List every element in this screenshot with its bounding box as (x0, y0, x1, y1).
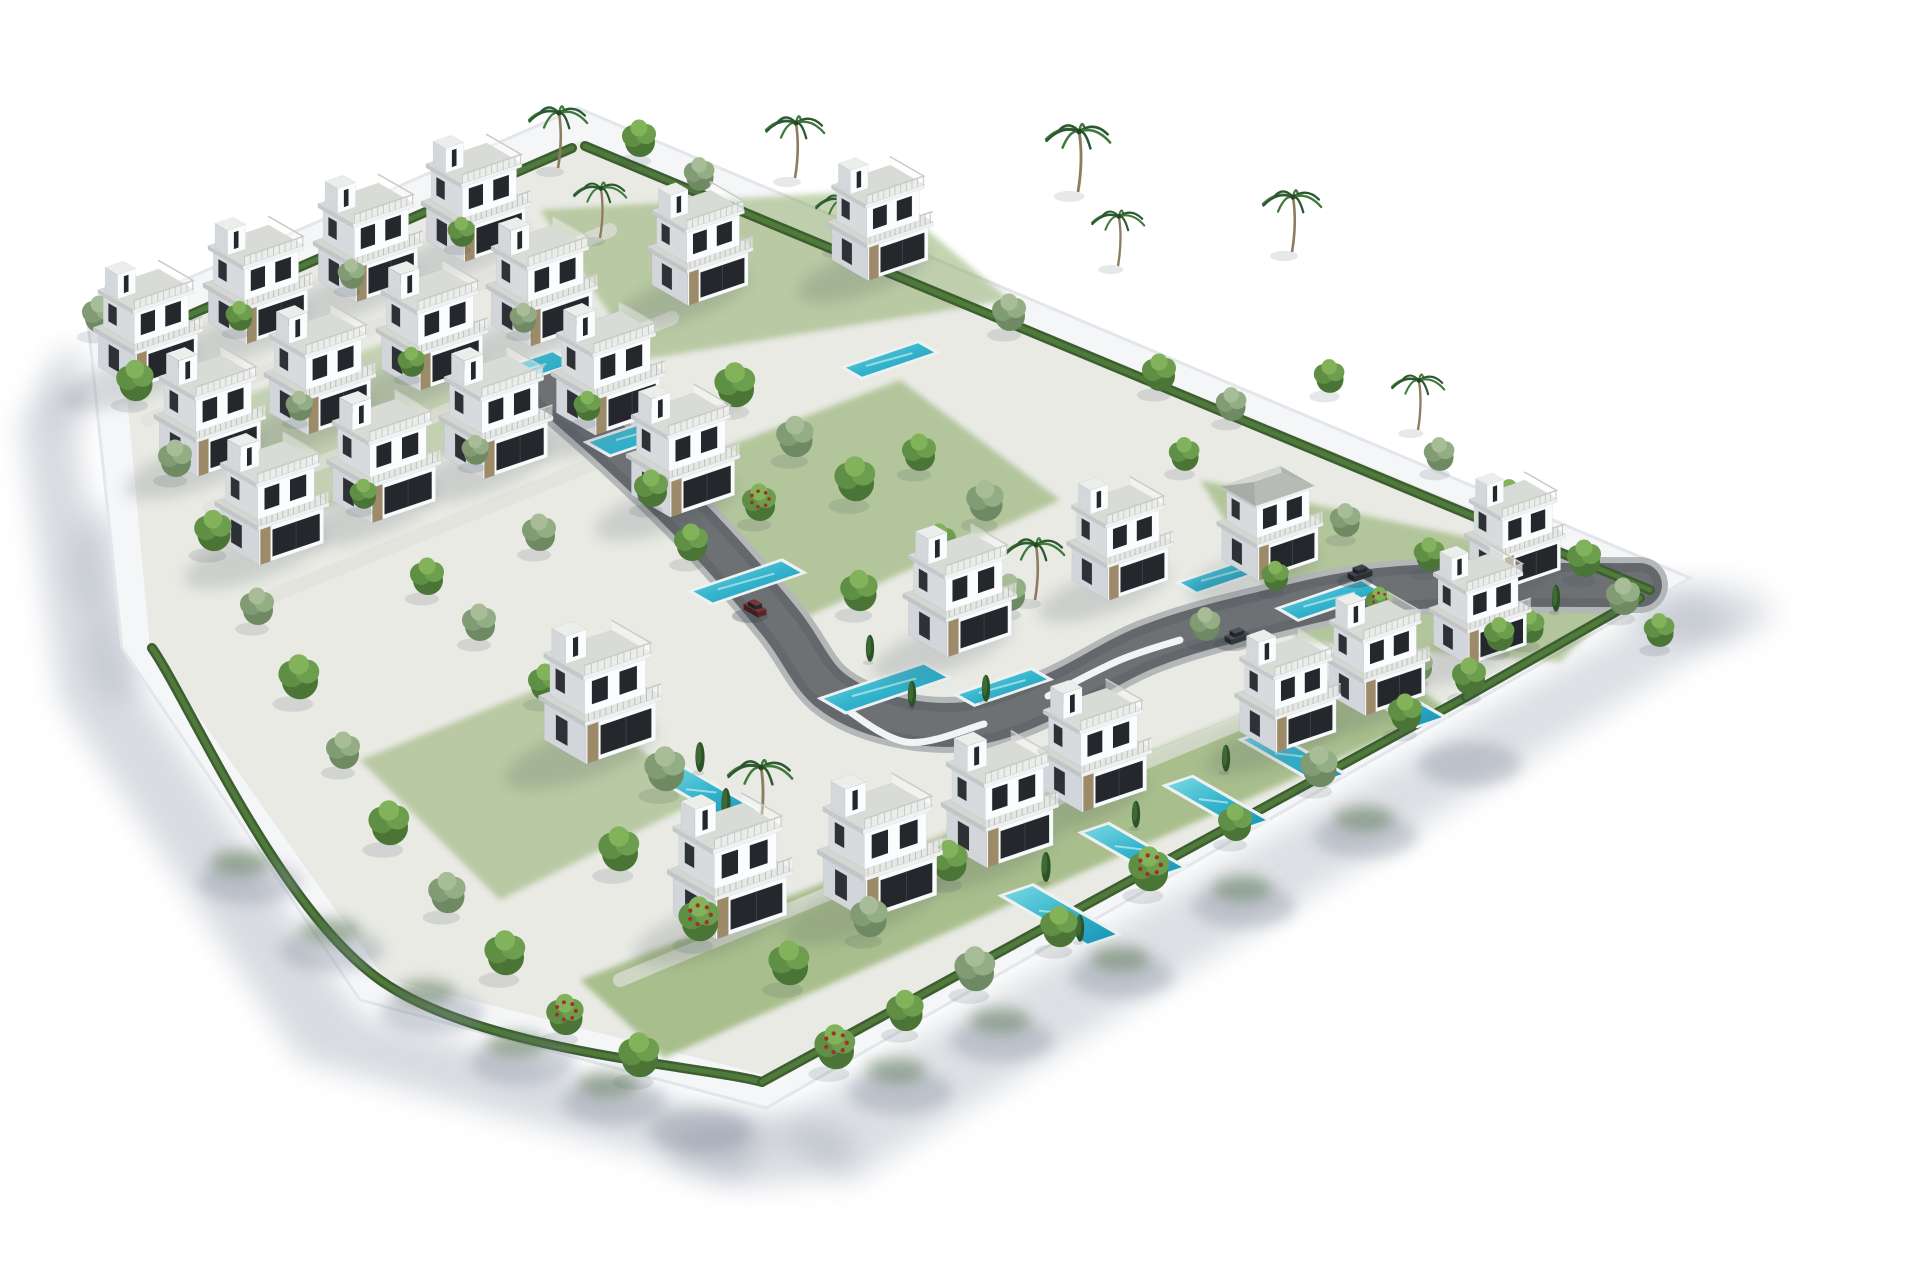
tree-shadow (1219, 770, 1230, 775)
tree-shadow (457, 639, 491, 652)
tree-shadow (1639, 645, 1670, 657)
flower (1372, 595, 1375, 598)
tree-shadow (478, 972, 519, 988)
tree-shadow (808, 1066, 849, 1082)
facade-face (452, 149, 457, 167)
tree-foliage (289, 654, 309, 674)
tree-foliage (1197, 607, 1212, 622)
facade-face (974, 746, 979, 766)
flower (841, 1033, 845, 1037)
palm-trunk (795, 123, 798, 178)
flower (570, 1002, 574, 1006)
flower (705, 920, 709, 924)
tree-shadow (362, 842, 403, 858)
facade-face (1354, 606, 1358, 624)
hedge-overhang (395, 979, 455, 1005)
wall-shadow-spill (1418, 742, 1522, 786)
tree-foliage (379, 800, 399, 820)
flower (824, 1045, 828, 1049)
flower (574, 1009, 578, 1013)
tree-shadow (835, 608, 872, 622)
tree-foliage (1337, 503, 1352, 518)
facade-face (717, 897, 728, 939)
flower (832, 1031, 836, 1035)
tree-shadow (570, 419, 597, 429)
palm-tree (1092, 211, 1144, 275)
palm-frond (1092, 215, 1119, 224)
flower (1145, 872, 1149, 876)
tree-foliage (609, 826, 629, 846)
tree-foliage (1552, 586, 1557, 606)
tree-foliage (1615, 578, 1632, 595)
facade-face (573, 636, 578, 657)
facade-face (1265, 643, 1269, 661)
facade-face (1457, 558, 1461, 575)
tree-shadow (1479, 649, 1510, 661)
facade-face (247, 447, 252, 466)
flower (841, 1048, 845, 1052)
tree-foliage (454, 217, 468, 231)
tree-shadow (979, 700, 990, 705)
tree-foliage (866, 636, 871, 656)
facade-face (251, 266, 265, 292)
palm-frond (1263, 195, 1293, 205)
tree-foliage (631, 120, 648, 137)
facade-face (1366, 679, 1375, 715)
tree-foliage (531, 514, 548, 531)
tree-foliage (965, 946, 985, 966)
tree-foliage (1576, 540, 1593, 557)
facade-face (295, 319, 300, 338)
estate-3d-render (0, 0, 1920, 1280)
flower (562, 1017, 566, 1021)
flower (555, 1013, 559, 1017)
tree-shadow (189, 548, 226, 562)
facade-face (1083, 773, 1093, 812)
flower (1138, 867, 1142, 871)
facade-face (471, 361, 476, 380)
tree-foliage (725, 362, 745, 382)
flower (709, 913, 713, 917)
tree-foliage (344, 259, 358, 273)
hedge-overhang (486, 1031, 546, 1057)
tree-foliage (1651, 613, 1666, 628)
facade-face (234, 231, 239, 249)
tree-shadow (1419, 469, 1450, 481)
facade-face (1473, 591, 1486, 615)
tree-foliage (696, 743, 702, 765)
tree-foliage (1268, 561, 1282, 575)
tree-foliage (911, 434, 928, 451)
tree-shadow (1122, 888, 1163, 904)
tree-shadow (536, 167, 564, 177)
render-stage: Aerial 3D render of a gated residential … (0, 0, 1920, 1280)
tree-foliage (1223, 387, 1238, 402)
flower (705, 905, 709, 909)
tree (1309, 359, 1344, 402)
flower (695, 922, 699, 926)
tree-shadow (672, 938, 713, 954)
flower (831, 1050, 835, 1054)
tree-shadow (346, 507, 373, 517)
facade-face (1070, 694, 1075, 713)
tree-foliage (779, 940, 799, 960)
tree-shadow (1038, 880, 1050, 885)
tree-shadow (863, 660, 874, 665)
tree-shadow (235, 623, 269, 636)
tree-foliage (468, 435, 482, 449)
flower (756, 489, 760, 493)
facade-face (1493, 485, 1497, 502)
palm-frond (781, 123, 796, 138)
flower (1383, 593, 1386, 596)
facade-face (141, 310, 155, 336)
tree-shadow (1601, 613, 1635, 626)
tree-shadow (334, 287, 361, 297)
tree-foliage (404, 347, 418, 361)
tree-foliage (1176, 437, 1191, 452)
facade-face (199, 439, 209, 477)
flower (1146, 853, 1150, 857)
tree-foliage (691, 157, 706, 172)
palm-crown (793, 120, 798, 125)
hedge-overhang (970, 1007, 1030, 1033)
tree (1419, 437, 1454, 480)
wall-shadow-spill (648, 1108, 752, 1152)
tree-foliage (1132, 802, 1137, 822)
tree-foliage (249, 588, 266, 605)
tree-foliage (1001, 294, 1018, 311)
tree-foliage (976, 480, 995, 499)
facade-face (658, 399, 663, 418)
palm-frond (1063, 131, 1080, 147)
tree-shadow (1325, 535, 1356, 547)
palm-crown (599, 186, 604, 191)
palm-tree (766, 116, 824, 187)
tree-foliage (335, 732, 352, 749)
flower (562, 1000, 566, 1004)
tree-foliage (845, 456, 865, 476)
facade-face (361, 224, 375, 250)
tree-foliage (1491, 617, 1506, 632)
tree-shadow (1295, 784, 1332, 798)
tree-shadow (444, 245, 471, 255)
tree-shadow (592, 868, 633, 884)
tree-shadow (321, 767, 355, 780)
palm-crown (758, 765, 764, 771)
tree-foliage (580, 391, 594, 405)
tree-shadow (773, 177, 801, 187)
tree-shadow (1211, 419, 1242, 431)
palm-frond (1278, 197, 1293, 212)
tree-foliage (1421, 537, 1436, 552)
facade-face (260, 526, 270, 565)
tree-shadow (1258, 589, 1285, 599)
palm-tree (1046, 124, 1110, 202)
facade-face (857, 171, 861, 189)
tree-foliage (860, 896, 879, 915)
palm-trunk (1078, 132, 1081, 193)
palm-tree (1263, 190, 1321, 261)
flower (570, 1016, 574, 1020)
tree-foliage (896, 990, 915, 1009)
tree-shadow (771, 454, 808, 468)
facade-face (517, 231, 522, 250)
flower (696, 903, 700, 907)
tree-foliage (232, 301, 246, 315)
facade-face (935, 539, 940, 558)
hedge-overhang (1212, 875, 1272, 901)
facade-face (873, 204, 887, 229)
palm-crown (1076, 129, 1082, 135)
tree-shadow (1562, 575, 1596, 588)
flower (555, 1005, 559, 1009)
palm-crown (1417, 378, 1422, 383)
flower (750, 494, 754, 498)
tree-foliage (1151, 354, 1168, 371)
facade-face (469, 184, 483, 210)
facade-face (1277, 716, 1286, 752)
tree-foliage (438, 872, 457, 891)
palm-frond (1405, 380, 1419, 393)
tree-foliage (786, 416, 805, 435)
tree-foliage (356, 479, 370, 493)
facade-face (1109, 564, 1118, 600)
tree-shadow (1549, 610, 1560, 615)
facade-face (588, 722, 599, 764)
flower (750, 501, 754, 505)
flower (688, 917, 692, 921)
flower (764, 491, 768, 495)
tree-shadow (1073, 940, 1084, 945)
tree-shadow (828, 498, 869, 514)
palm-trunk (1292, 197, 1295, 252)
tree-shadow (629, 505, 663, 518)
tree-shadow (153, 475, 187, 488)
tree-foliage (1461, 658, 1478, 675)
tree-shadow (737, 519, 771, 532)
facade-face (407, 275, 412, 294)
palm-crown (1117, 214, 1122, 219)
tree-shadow (272, 696, 313, 712)
tree-foliage (516, 303, 530, 317)
tree-shadow (881, 1028, 918, 1042)
tree-shadow (1398, 429, 1423, 438)
flower (1155, 870, 1159, 874)
facade-face (671, 478, 681, 517)
tree-shadow (1383, 729, 1417, 742)
facade-face (583, 317, 588, 336)
tree-foliage (643, 470, 660, 487)
tree-shadow (1164, 469, 1195, 481)
facade-face (689, 269, 698, 305)
tree-shadow (762, 982, 803, 998)
tree-shadow (394, 375, 421, 385)
facade-face (869, 244, 878, 280)
facade-face (1113, 524, 1127, 549)
tree-shadow (1270, 251, 1298, 261)
facade-face (359, 405, 364, 424)
hedge-overhang (300, 917, 360, 943)
tree-foliage (1227, 804, 1244, 821)
tree-shadow (1213, 839, 1247, 852)
hedge-overhang (1334, 805, 1394, 831)
flower (1138, 858, 1142, 862)
facade-face (693, 229, 707, 254)
tree-shadow (458, 463, 485, 473)
flower (824, 1036, 828, 1040)
facade-face (344, 189, 349, 207)
tree-shadow (1309, 391, 1340, 403)
tree-foliage (1050, 906, 1069, 925)
facade-face (1281, 676, 1295, 701)
flower (767, 497, 771, 501)
tree-shadow (1137, 389, 1171, 402)
tree-foliage (1042, 853, 1048, 875)
tree-shadow (617, 155, 651, 168)
flower (756, 505, 760, 509)
tree-foliage (495, 930, 515, 950)
tree-foliage (204, 510, 223, 529)
tree-foliage (292, 391, 306, 405)
facade-face (1263, 504, 1277, 529)
palm-frond (1105, 216, 1119, 229)
tree-foliage (722, 789, 728, 811)
tree-shadow (669, 559, 703, 572)
tree-foliage (1397, 694, 1414, 711)
tree-foliage (850, 570, 869, 589)
tree-foliage (1431, 437, 1446, 452)
tree-shadow (111, 398, 148, 412)
tree-foliage (908, 682, 913, 702)
palm-frond (766, 121, 796, 131)
flower (1155, 855, 1159, 859)
tree-shadow (222, 329, 249, 339)
facade-face (677, 196, 681, 214)
tree-shadow (1054, 191, 1085, 202)
facade-face (948, 618, 958, 657)
tree-shadow (1098, 265, 1123, 274)
facade-face (1508, 517, 1521, 541)
tree-foliage (1222, 746, 1227, 766)
tree-shadow (1185, 639, 1216, 651)
tree-foliage (1321, 359, 1336, 374)
facade-face (1370, 639, 1384, 664)
palm-frond (1047, 130, 1079, 141)
tree-shadow (1447, 693, 1481, 706)
tree-shadow (405, 593, 439, 606)
flower (845, 1041, 849, 1045)
facade-face (853, 790, 858, 811)
tree-shadow (517, 549, 551, 562)
tree-foliage (167, 440, 184, 457)
palm-crown (556, 110, 561, 115)
tree-foliage (471, 604, 488, 621)
facade-face (185, 361, 190, 380)
flower (1377, 592, 1380, 595)
tree-shadow (897, 469, 931, 482)
palm-trunk (1118, 217, 1121, 267)
tree-foliage (629, 1032, 649, 1052)
palm-frond (1392, 379, 1419, 388)
tree-foliage (655, 746, 675, 766)
tree-shadow (282, 419, 309, 429)
facade-face (124, 275, 129, 293)
tree-shadow (423, 910, 460, 924)
hedge-overhang (210, 849, 270, 875)
tree-shadow (506, 331, 533, 341)
tree-shadow (692, 770, 704, 775)
tree-foliage (419, 558, 436, 575)
tree-foliage (126, 360, 145, 379)
facade-face (703, 810, 708, 831)
tree-shadow (987, 329, 1021, 342)
flower (1372, 600, 1375, 603)
tree-foliage (982, 676, 987, 696)
hedge-overhang (578, 1071, 638, 1097)
flower (764, 503, 768, 507)
tree-foliage (683, 524, 700, 541)
facade-face (1097, 491, 1101, 509)
tree-shadow (1129, 826, 1140, 831)
flower (688, 908, 692, 912)
facade-face (988, 828, 998, 868)
palm-tree (1392, 375, 1444, 439)
tree-foliage (1310, 746, 1329, 765)
hedge-overhang (1090, 945, 1150, 971)
tree-shadow (948, 988, 989, 1004)
palm-crown (1033, 542, 1038, 547)
tree-shadow (845, 934, 882, 948)
tree-shadow (1035, 944, 1072, 958)
tree-shadow (905, 706, 916, 711)
hedge-overhang (866, 1057, 926, 1083)
tree-shadow (638, 788, 679, 804)
palm-trunk (1418, 381, 1421, 431)
palm-crown (1290, 194, 1295, 199)
flower (1159, 863, 1163, 867)
